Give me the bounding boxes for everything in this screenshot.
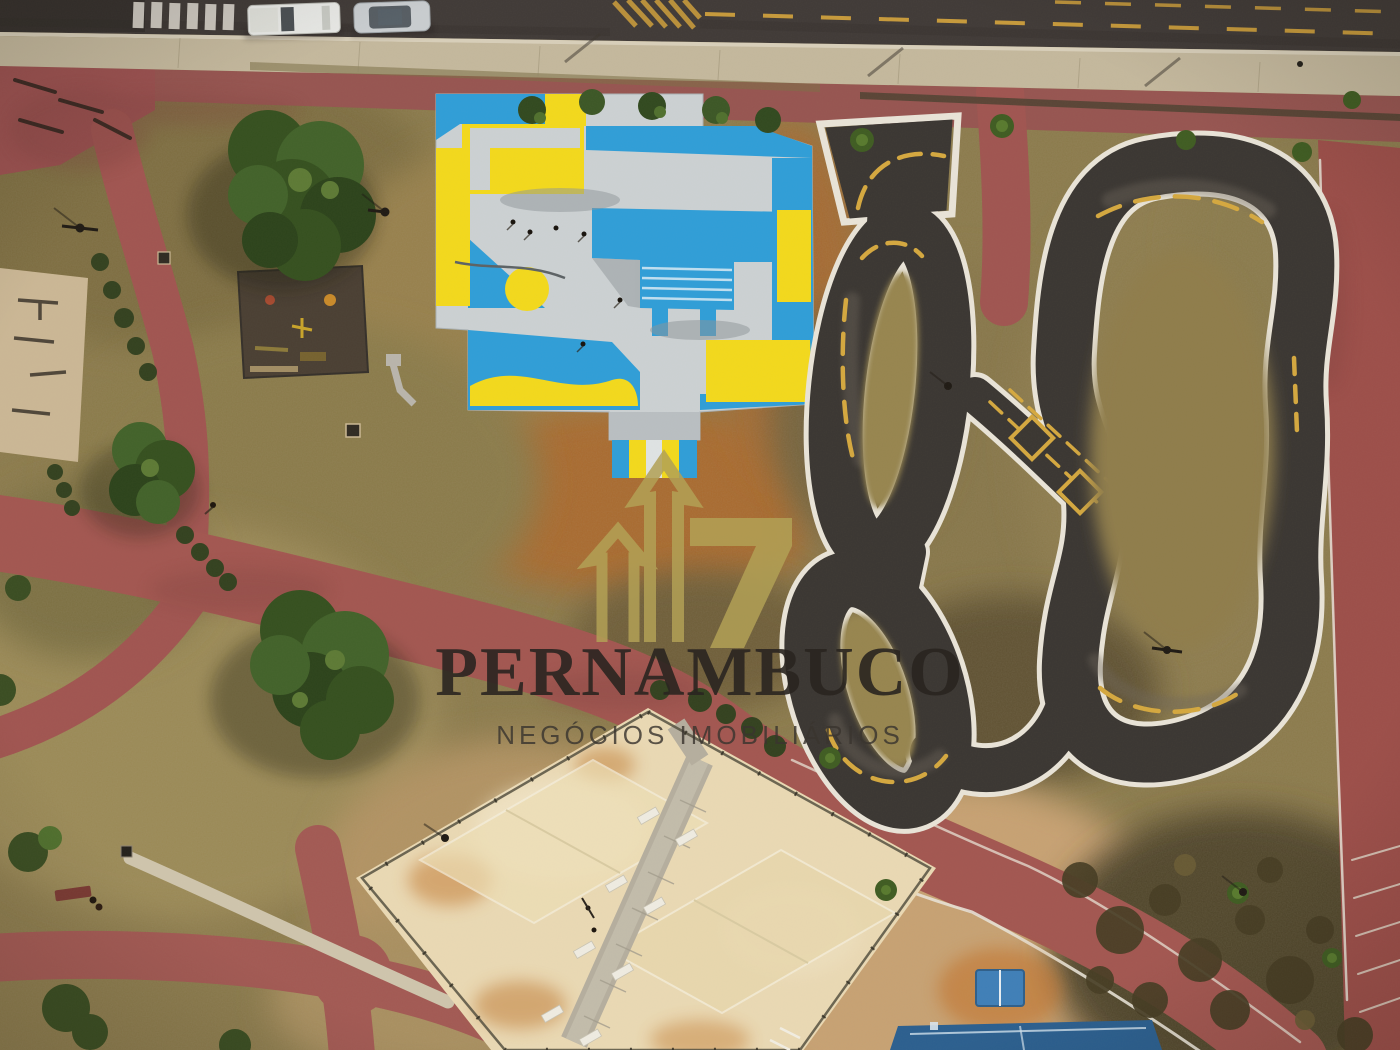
scene-canvas	[0, 0, 1400, 1050]
vignette	[0, 0, 1400, 1050]
aerial-park-photo: PERNAMBUCO NEGÓCIOS IMOBILIÁRIOS	[0, 0, 1400, 1050]
